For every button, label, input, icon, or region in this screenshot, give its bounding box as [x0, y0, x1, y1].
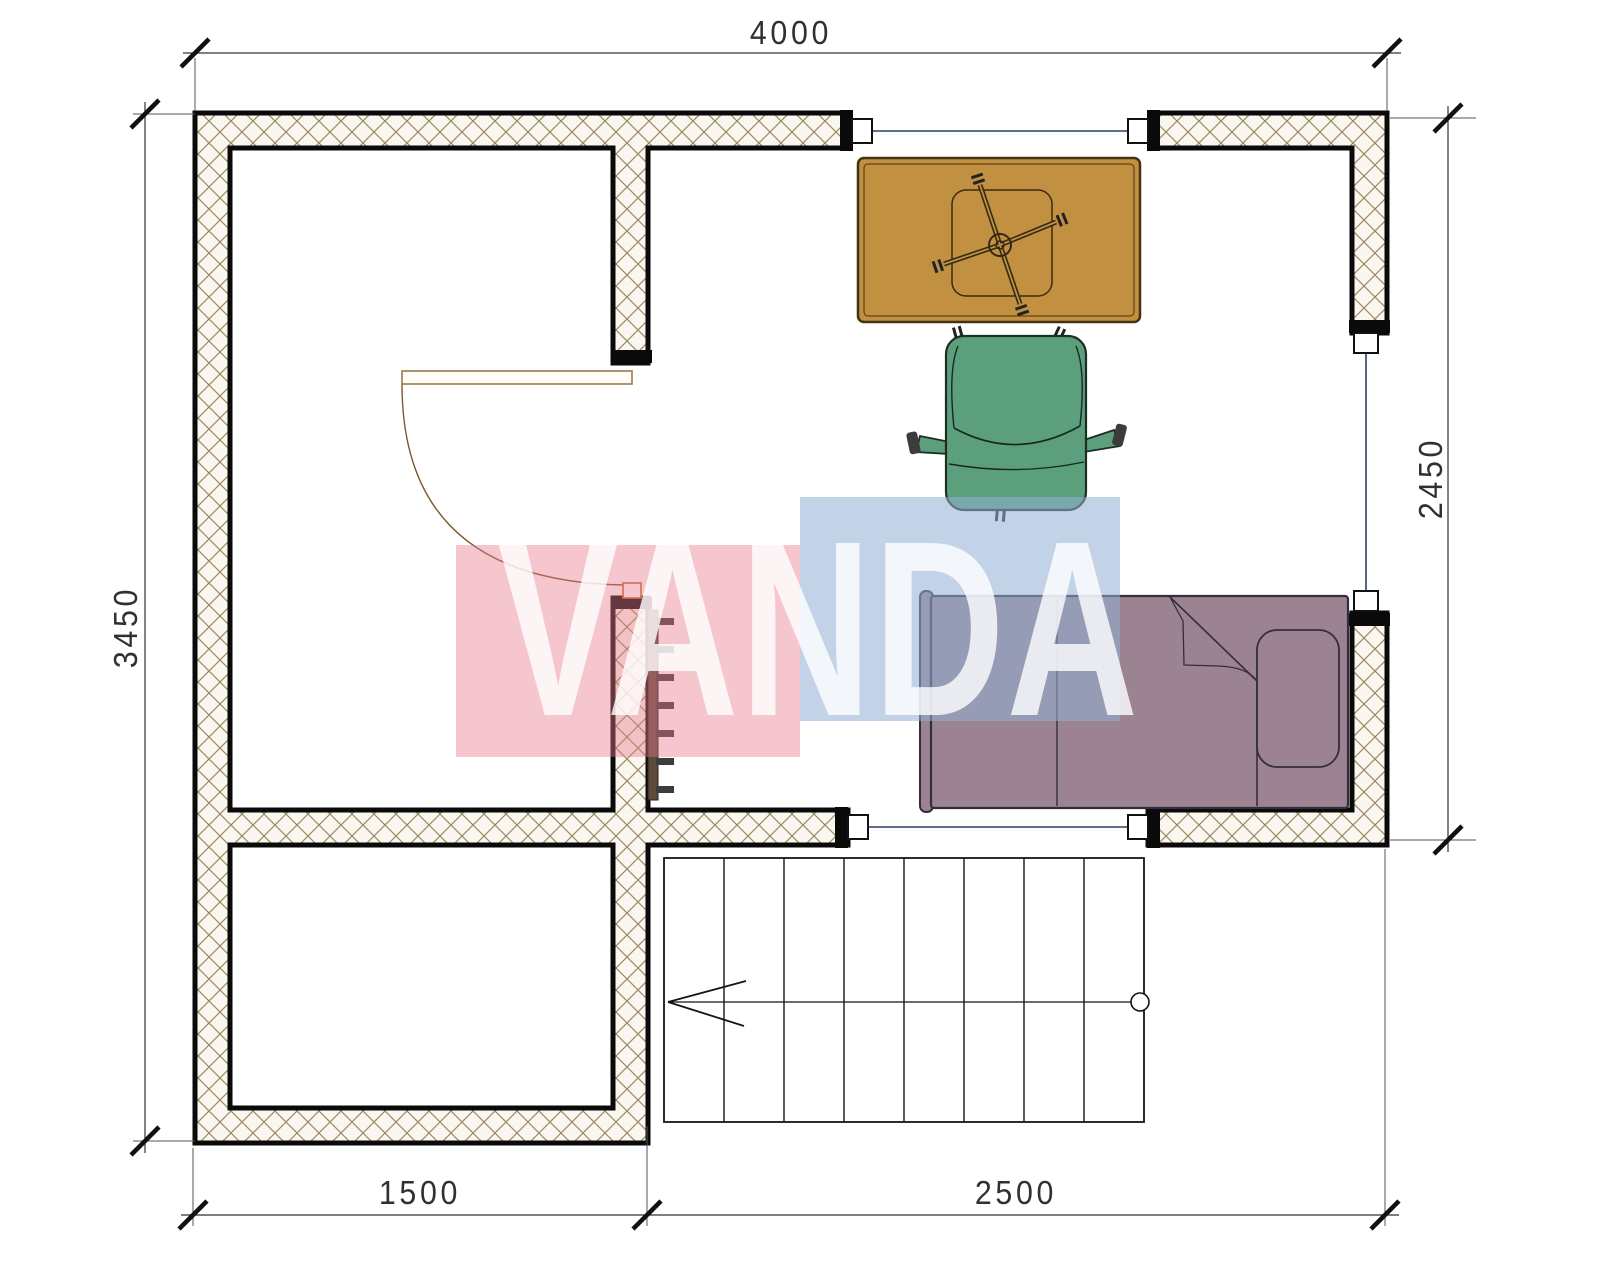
stairs-start-marker [1131, 993, 1149, 1011]
floor-plan-canvas: VANDA 4000 3450 2450 1500 2500 [0, 0, 1600, 1280]
pillow [1257, 630, 1339, 767]
staircase [664, 858, 1149, 1122]
dimension-label-right: 2450 [1412, 437, 1450, 519]
chair-body [946, 336, 1086, 510]
door-leaf [402, 371, 632, 384]
window-bottom [848, 815, 1148, 839]
desk [858, 158, 1140, 322]
window-top [852, 119, 1148, 143]
wall-top-right [1150, 113, 1387, 333]
dimension-label-left: 3450 [107, 586, 145, 668]
dimension-label-top: 4000 [750, 14, 832, 52]
watermark-logo-text: VANDA [497, 504, 1140, 754]
window-right [1354, 333, 1378, 611]
dimension-label-bottom-right: 2500 [975, 1174, 1057, 1212]
dimension-label-bottom-left: 1500 [379, 1174, 461, 1212]
